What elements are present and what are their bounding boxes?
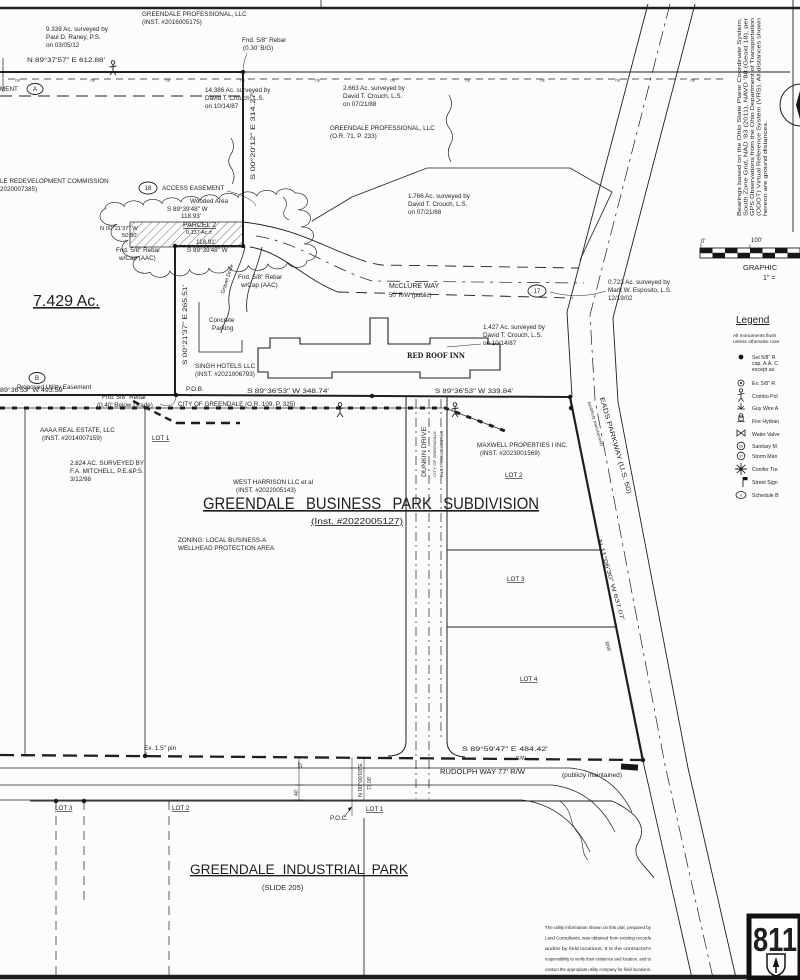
label-49: Parking: [212, 325, 234, 332]
label-50: 1.427 Ac. surveyed by: [483, 324, 546, 331]
label-136: (ODOT) Virtual Reference System (VRS). A…: [757, 18, 763, 216]
label-72: CITY OF GREENDALE: [433, 430, 437, 477]
label-1: Paul D. Raney, P.S.: [46, 34, 101, 41]
lot-lines: [447, 550, 617, 627]
lot-2-label: LOT 2: [505, 472, 523, 479]
parcel-17-label: 17: [534, 289, 541, 295]
label-15: on 07/21/88: [343, 101, 377, 108]
pob-label: P.O.B.: [186, 386, 204, 393]
label-73: INST. #2022004789: [440, 431, 444, 477]
bearing-eads: N 11°06'30" W 637.07': [596, 539, 625, 621]
scale-graphic: GRAPHIC: [743, 263, 778, 272]
red-roof-inn-building: [258, 318, 500, 378]
street-sign-icon: [743, 477, 748, 487]
label-144: OE: [465, 79, 471, 83]
subdivision-title: GREENDALE BUSINESS PARK SUBDIVISION: [203, 495, 539, 513]
label-2: on 03/05/12: [46, 42, 80, 49]
label-123: Conifer Tre: [752, 467, 778, 473]
label-81: ZONING: LOCAL BUSINESS-A: [178, 537, 267, 544]
label-101: LOT 3: [55, 805, 73, 812]
label-36: w/Cap (AAC): [118, 255, 156, 262]
label-119: Fire Hydran: [752, 419, 779, 425]
labels-layer: 9.339 Ac. surveyed byPaul D. Raney, P.S.…: [0, 11, 797, 973]
owner-singh-hotels: SINGH HOTELS LLC: [195, 363, 256, 370]
label-57: (0.40' Below Grade): [97, 402, 153, 409]
fire-hydrant-icon: [738, 414, 745, 422]
label-33: 118.91': [196, 239, 216, 246]
owner-west-harrison: WEST HARRISON LLC et al: [233, 479, 313, 486]
label-52: on 10/14/87: [483, 340, 517, 347]
label-31: N 00°21'37" W: [100, 226, 138, 232]
label-64: CITY OF GREENDALE (O.R. 109, P. 325): [178, 401, 295, 408]
label-95: 40': [294, 789, 300, 796]
label-78: (INST. #2022005143): [236, 487, 296, 494]
label-106: and/or by field locations. It is the con…: [545, 946, 652, 952]
label-88: R/W: [603, 641, 612, 652]
label-16: GREENDALE PROFESSIONAL, LLC: [330, 125, 435, 132]
existing-rebar-icon: [738, 380, 744, 386]
lot-3-label: LOT 3: [507, 576, 525, 583]
owner-aaaa-real-estate: AAAA REAL ESTATE, LLC: [40, 427, 115, 434]
label-145: OE: [540, 79, 546, 83]
utility-note-1: The utility information shown on this pl…: [545, 925, 652, 931]
label-137: hereon are ground distances.: [763, 121, 769, 216]
label-82: WELLHEAD PROTECTION AREA: [178, 545, 275, 552]
label-12: on 10/14/87: [205, 103, 239, 110]
scale-0: 0': [701, 239, 705, 245]
dunkin-drive-label: DUNKIN DRIVE: [421, 426, 428, 477]
label-146: OE: [615, 79, 621, 83]
label-138: OE: [15, 79, 21, 83]
label-55: (INST. #2021006793): [195, 371, 255, 378]
rudolph-way: [0, 757, 638, 852]
label-34: S 89°39'48" W: [187, 246, 228, 254]
label-135: GPS Observations from the Ohio Departmen…: [750, 18, 756, 216]
label-30: 0.137 Ac.±: [186, 230, 212, 236]
gravel-drive-lines: [199, 247, 262, 352]
label-56: Fnd. 5/8" Rebar: [102, 394, 146, 401]
label-20: 2020007385): [0, 186, 37, 193]
label-122: Storm Man: [752, 454, 777, 460]
graphic-scale-bar: [700, 244, 800, 259]
monument-dots: [54, 70, 645, 803]
label-43: 0.723 Ac. surveyed by: [608, 279, 671, 286]
red-roof-inn-label: RED ROOF INN: [407, 351, 466, 360]
acreage-7-429: 7.429 Ac.: [33, 293, 100, 310]
label-22: ACCESS EASEMENT: [162, 185, 224, 192]
combo-pole-legend-icon: [738, 389, 745, 402]
label-103: (SLIDE 205): [262, 883, 304, 892]
acreage-9-339: 9.339 Ac. surveyed by: [46, 26, 109, 33]
label-111: All monuments flush: [733, 333, 777, 339]
label-75: (INST. #2023001569): [480, 450, 540, 457]
label-134: South Zone Grid, NAD '83 (2011), NAVD '8…: [744, 18, 750, 216]
label-68: 2.824 AC. SURVEYED BY: [70, 460, 145, 467]
rudolph-way-label: RUDOLPH WAY 77' R/W: [440, 769, 525, 776]
label-4: (INST. #2016005175): [142, 19, 202, 26]
label-35: Fnd. 5/8" Rebar: [116, 247, 160, 254]
label-10: 14.386 Ac. surveyed by: [205, 87, 271, 94]
label-32: 50.90': [122, 233, 138, 239]
label-25: on 07/21/88: [408, 209, 442, 216]
label-100: LOT 2: [172, 805, 190, 812]
legend-title: Legend: [736, 315, 769, 326]
label-128: n: [740, 492, 743, 497]
label-140: OE: [165, 79, 171, 83]
label-147: OE: [690, 79, 696, 83]
call-811-number: 811: [753, 921, 797, 958]
label-8: MENT: [0, 86, 18, 93]
label-97: 77.00': [367, 776, 373, 790]
conifer-tree-icon: [735, 463, 747, 475]
label-70: 3/12/98: [70, 476, 92, 483]
poc-label: P.O.C.: [330, 815, 348, 822]
label-14: David T. Crouch, L.S.: [343, 93, 403, 100]
label-37: Fnd. 5/8" Rebar: [238, 274, 282, 281]
label-132: 1" =: [763, 275, 775, 282]
easement-18-label: 18: [145, 186, 152, 192]
label-45: 12/19/02: [608, 295, 633, 302]
label-26: Wooded Area: [190, 198, 229, 205]
plat-drawing: 9.339 Ac. surveyed byPaul D. Raney, P.S.…: [0, 0, 800, 980]
easement-a-label: A: [33, 87, 37, 93]
label-118: Guy Wire A: [752, 406, 779, 412]
label-92: (publicly maintained): [562, 773, 622, 779]
bearing-south-1: S 89°36'53" W 348.74': [247, 387, 329, 395]
label-93: Ex. 1.5" pin: [144, 745, 176, 752]
label-125: Schedule B: [752, 493, 779, 499]
label-127: ST: [739, 454, 743, 458]
legend-icons: [735, 355, 748, 499]
label-105: Land Consultants, was obtained from exis…: [545, 936, 652, 942]
label-44: Mark W. Esposito, L.S.: [608, 287, 672, 294]
eads-parkway-label: EADS PARKWAY (U.S. 50): [598, 397, 632, 495]
label-124: Street Sign: [752, 480, 778, 486]
label-116: Ex. 5/8" R: [752, 381, 775, 387]
lot-1-business: LOT 1: [152, 435, 170, 442]
label-107: responsibility to verify their existence…: [545, 957, 651, 963]
bearing-south-2: S 89°36'53" W 339.84': [435, 387, 513, 395]
north-arrow-icon: [780, 84, 800, 126]
guy-wire-icon: [737, 403, 745, 409]
label-60: 89°36'53" W 493.59': [0, 386, 64, 394]
label-126: SS: [739, 444, 743, 448]
parcel-2-label: PARCEL 2: [183, 222, 216, 229]
eads-parkway: [567, 4, 736, 978]
owner-maxwell: MAXWELL PROPERTIES I INC.: [477, 442, 568, 449]
set-rebar-icon: [739, 355, 744, 360]
easement-b-label: B: [35, 376, 39, 382]
plat-sheet: 9.339 Ac. surveyed byPaul D. Raney, P.S.…: [0, 0, 800, 980]
parcel-boundaries: [0, 72, 643, 761]
label-112: unless otherwise note: [733, 339, 780, 345]
label-108: contact the appropiate utility company f…: [545, 967, 651, 973]
subdivision-inst: (Inst. #2022005127): [311, 516, 403, 526]
bearings-note-1: Bearings based on the Ohio State Plane C…: [737, 18, 743, 216]
lot-4-label: LOT 4: [520, 676, 538, 683]
label-142: OE: [315, 79, 321, 83]
label-120: Water Valve: [752, 432, 780, 438]
label-69: F.A. MITCHELL, P.E.&P.S.: [70, 468, 144, 475]
mcclure-way-label: McCLURE WAY: [389, 283, 440, 290]
scale-100: 100': [751, 238, 762, 244]
label-6: (0.30' B/G): [243, 45, 273, 52]
label-19: LE REDEVELOPMENT COMMISSION: [0, 178, 109, 185]
label-66: (INST. #2014007159): [42, 435, 102, 442]
label-48: Concrete: [209, 317, 235, 324]
label-27: S 89°39'48" W: [167, 205, 208, 213]
water-valve-icon: [737, 430, 745, 436]
label-28: 118.93': [181, 213, 201, 220]
label-90: R/W: [516, 756, 526, 762]
label-41: 50' R/W (public): [389, 293, 432, 299]
label-51: David T. Crouch, L.S.: [483, 332, 543, 339]
label-115: except as: [752, 367, 775, 373]
bearing-north-line: N 89°37'57" E 612.88': [27, 56, 105, 64]
label-141: OE: [240, 79, 246, 83]
bearing-rudolph: S 89°59'47" E 484.42': [462, 745, 548, 753]
industrial-park-title: GREENDALE INDUSTRIAL PARK: [190, 862, 408, 877]
label-121: Sanitary M: [752, 444, 777, 450]
label-23: 1.766 Ac. surveyed by: [408, 193, 471, 200]
label-17: (O.R. 71, P. 233): [330, 133, 377, 140]
parcel-1766-outline: [312, 168, 612, 260]
found-rebar-north: Fnd. 5/8" Rebar: [242, 37, 286, 44]
label-139: OE: [90, 79, 96, 83]
label-143: OE: [390, 79, 396, 83]
label-96: N 00°00'03"E: [358, 762, 364, 797]
label-117: Combo Pol: [752, 394, 778, 400]
label-24: David T. Crouch, L.S.: [408, 201, 468, 208]
lot-1-industrial: LOT 1: [366, 806, 384, 813]
label-94: 37': [298, 761, 304, 768]
label-13: 2.663 Ac. surveyed by: [343, 85, 406, 92]
bearing-east-parcel: S 00°20'12" E 314.27': [249, 92, 257, 180]
label-38: w/Cap (AAC): [240, 282, 278, 289]
bearing-west-line: S 00°21'37" E 265.51': [181, 285, 189, 365]
owner-greendale-professional: GREENDALE PROFESSIONAL, LLC: [142, 11, 247, 18]
